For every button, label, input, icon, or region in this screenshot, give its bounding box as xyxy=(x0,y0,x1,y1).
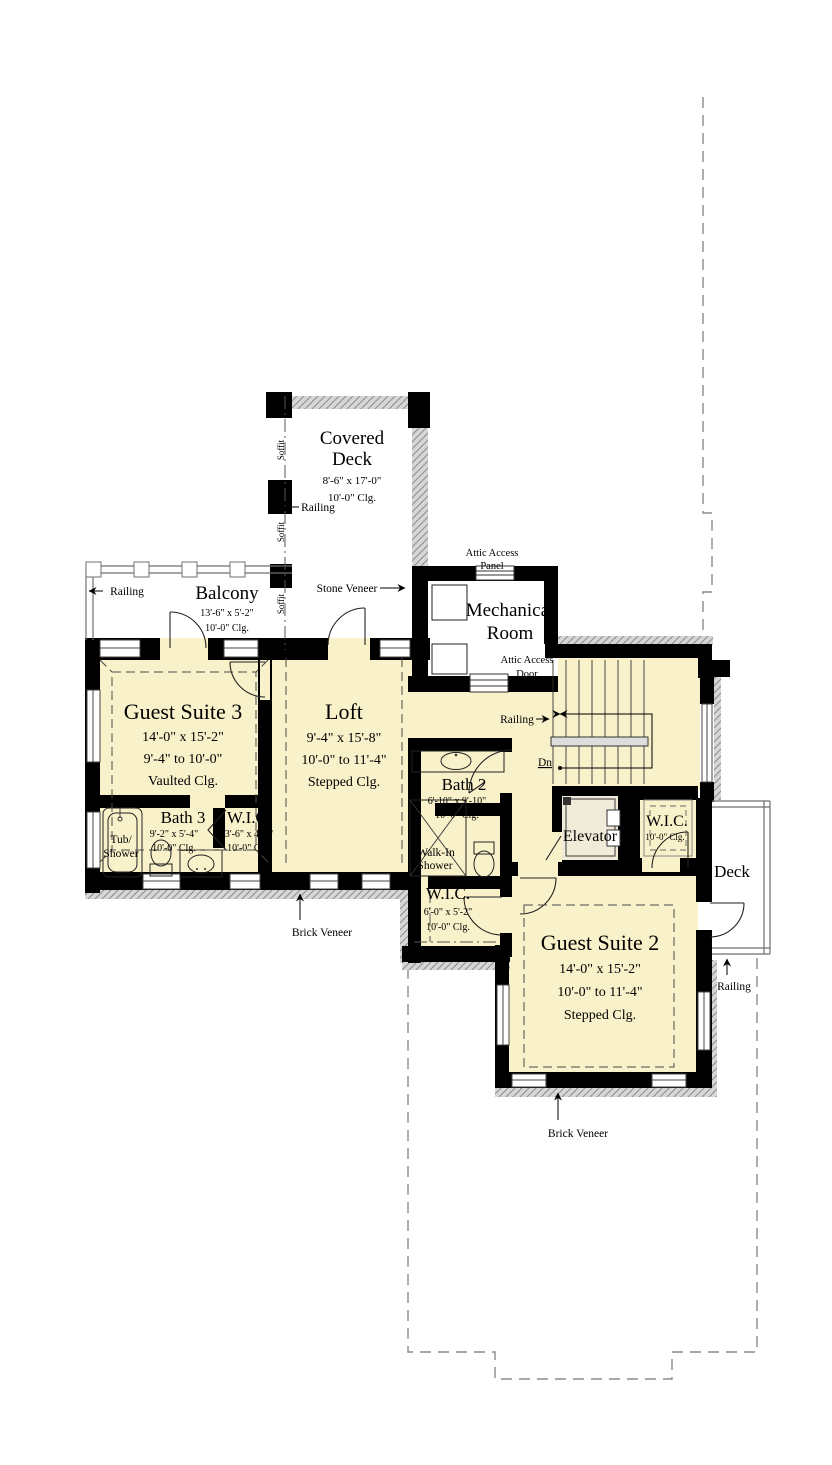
bath2-clg: 10'-0" Clg. xyxy=(435,810,479,821)
covered-deck-clg: 10'-0" Clg. xyxy=(328,492,376,504)
walkin-shower-label-2: Shower xyxy=(417,860,452,872)
soffit-label-2: Soffit xyxy=(276,521,286,542)
room-label-loft: Loft xyxy=(325,699,363,724)
room-label-covered-deck-2: Deck xyxy=(332,449,373,470)
attic-access-door-label-2: Door xyxy=(516,669,538,680)
covered-deck-dims: 8'-6" x 17'-0" xyxy=(323,475,382,487)
loft-dims: 9'-4" x 15'-8" xyxy=(307,731,382,746)
loft-clg: Stepped Clg. xyxy=(308,775,380,790)
bath2-dims: 6'-10" x 9'-10" xyxy=(428,796,486,807)
tub-shower-label: Tub/ xyxy=(110,834,132,846)
attic-access-panel-label-2: Panel xyxy=(480,561,503,572)
soffit-label-1: Soffit xyxy=(276,439,286,460)
railing-label-covered-deck: Railing xyxy=(301,502,335,514)
room-label-elevator: Elevator xyxy=(563,828,618,845)
guest3-dims: 14'-0" x 15'-2" xyxy=(142,730,224,745)
room-label-wic3: W.I.C. xyxy=(227,808,271,827)
wic3-dims: 3'-6" x 4'-4" xyxy=(225,829,273,840)
room-label-wic-right: W.I.C. xyxy=(646,813,688,830)
mech-equipment-1 xyxy=(432,585,467,620)
attic-access-panel-label: Attic Access xyxy=(466,548,519,559)
wic2-dims: 6'-0" x 5'-2" xyxy=(424,907,472,918)
floor-plan-drawing: Covered Deck 8'-6" x 17'-0" 10'-0" Clg. … xyxy=(0,0,832,1465)
room-label-guest-suite-2: Guest Suite 2 xyxy=(541,930,660,955)
balcony-dims: 13'-6" x 5'-2" xyxy=(200,608,253,619)
wic-right-clg: 10'-0" Clg. xyxy=(645,832,684,842)
room-label-wic2: W.I.C. xyxy=(426,884,470,903)
tub-shower-label-2: Shower xyxy=(103,848,138,860)
room-label-covered-deck: Covered xyxy=(320,428,385,449)
wic2-clg: 10'-0" Clg. xyxy=(426,922,470,933)
railing-label-deck: Railing xyxy=(717,981,751,993)
mech-equipment-2 xyxy=(432,644,467,674)
balcony-clg: 10'-0" Clg. xyxy=(205,623,249,634)
guest3-clg: Vaulted Clg. xyxy=(148,774,218,789)
room-label-mechanical-2: Room xyxy=(487,623,534,644)
brick-veneer-label-left: Brick Veneer xyxy=(292,927,352,939)
room-label-bath2: Bath 2 xyxy=(442,775,487,794)
room-label-guest-suite-3: Guest Suite 3 xyxy=(124,699,243,724)
dn-label: Dn xyxy=(538,757,552,769)
guest3-height: 9'-4" to 10'-0" xyxy=(144,752,223,767)
guest2-dims: 14'-0" x 15'-2" xyxy=(559,962,641,977)
room-label-balcony: Balcony xyxy=(195,583,259,604)
soffit-label-3: Soffit xyxy=(276,593,286,614)
bath3-clg: 10'-0" Clg. xyxy=(152,843,196,854)
guest2-clg: Stepped Clg. xyxy=(564,1008,636,1023)
brick-veneer-label-bottom: Brick Veneer xyxy=(548,1128,608,1140)
walkin-shower-label: Walk-In xyxy=(417,847,455,859)
floor-plan-page: Covered Deck 8'-6" x 17'-0" 10'-0" Clg. … xyxy=(0,0,832,1465)
bath3-dims: 9'-2" x 5'-4" xyxy=(150,829,198,840)
guest2-height: 10'-0" to 11'-4" xyxy=(557,985,642,1000)
balcony-railing xyxy=(86,562,292,640)
room-label-bath3: Bath 3 xyxy=(161,808,206,827)
loft-height: 10'-0" to 11'-4" xyxy=(301,753,386,768)
stone-veneer-label: Stone Veneer xyxy=(317,583,378,595)
railing-label-stairs: Railing xyxy=(500,714,534,726)
room-label-mechanical: Mechanical xyxy=(466,600,555,621)
railing-label-balcony: Railing xyxy=(110,586,144,598)
attic-access-door-symbol xyxy=(470,674,508,692)
room-label-deck: Deck xyxy=(714,862,750,881)
attic-access-door-label: Attic Access xyxy=(501,655,554,666)
wic3-clg: 10'-0" Clg. xyxy=(227,843,271,854)
stair-railing-bar xyxy=(551,737,648,746)
